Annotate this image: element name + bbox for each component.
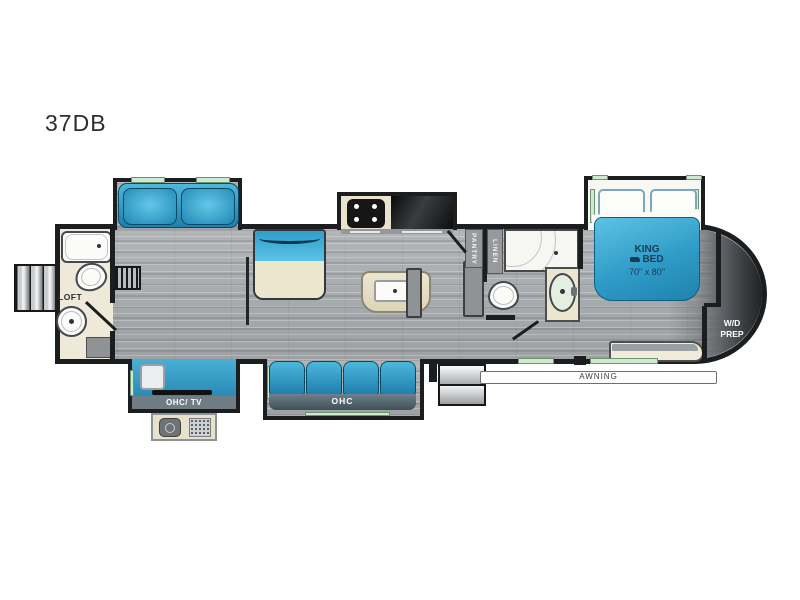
model-number-label: 37DB <box>45 110 107 137</box>
island-faucet <box>393 289 397 293</box>
bathtub-drain <box>97 244 101 248</box>
wd-label-line2: PREP <box>710 329 754 340</box>
window <box>592 175 608 180</box>
sofa-cushion <box>306 361 342 395</box>
loft-label: LOFT <box>58 292 82 302</box>
shower-drain <box>554 251 558 255</box>
linen-label: LINEN <box>487 229 503 274</box>
wd-closet-wall <box>716 229 721 305</box>
bathtub-rim <box>65 234 108 260</box>
dresser-top <box>612 344 698 351</box>
loveseat-cushion-left <box>123 188 177 225</box>
range-stove <box>347 199 385 228</box>
entry-door-jamb <box>429 359 437 382</box>
loft-ladder <box>114 266 141 290</box>
hall-cabinet <box>406 268 422 318</box>
window <box>196 177 230 183</box>
vanity-drain <box>560 289 565 294</box>
main-entry-steps <box>438 364 486 406</box>
mid-bath-wall-bottom <box>486 315 515 320</box>
refrigerator <box>391 196 453 230</box>
burner <box>372 204 377 209</box>
window <box>130 370 134 396</box>
window <box>305 412 390 416</box>
awning-bracket <box>574 356 586 365</box>
king-bed-label-line2: BED <box>594 255 700 265</box>
ohc-tv-label: OHC/ TV <box>132 396 236 409</box>
mid-bath-wall <box>483 229 487 282</box>
rear-sink-drain <box>69 319 74 324</box>
tv-screen <box>152 390 212 395</box>
burner <box>354 217 359 222</box>
pantry-cabinet <box>463 261 484 317</box>
sofa-label: OHC <box>269 394 416 410</box>
loveseat-cushion-right <box>181 188 235 225</box>
den-bed-pillow-line <box>259 233 320 244</box>
rear-bath-wall-lower <box>110 331 115 359</box>
window <box>131 177 165 183</box>
cabinet-handle <box>350 231 380 233</box>
floorplan-canvas: 37DB KING BED 70" x 80" OHC/ TV <box>0 0 800 600</box>
pantry-label: PANTRY <box>465 229 483 268</box>
rear-entry-steps <box>14 264 58 312</box>
den-divider-wall <box>246 257 249 325</box>
shower-door-arc <box>504 229 556 272</box>
rear-bath-wall <box>110 229 115 303</box>
bedroom-wall <box>578 227 583 269</box>
awning-bar: AWNING <box>480 371 717 384</box>
grill-burner <box>165 423 175 433</box>
window <box>590 358 658 364</box>
vanity-faucet <box>571 287 577 296</box>
wd-closet-wall-lower <box>702 306 707 360</box>
sofa-cushion <box>380 361 416 395</box>
shower <box>504 229 579 272</box>
window <box>686 175 702 180</box>
burner <box>372 217 377 222</box>
king-bed-label: KING BED 70" x 80" <box>594 245 700 277</box>
king-bed-size: 70" x 80" <box>594 265 700 277</box>
den-bed <box>253 229 326 300</box>
sofa-cushion <box>269 361 305 395</box>
burner <box>354 204 359 209</box>
step-lower <box>440 386 484 404</box>
sofa-cushion <box>343 361 379 395</box>
griddle-icon <box>189 418 211 437</box>
window <box>518 358 554 364</box>
mid-toilet-seat <box>493 286 514 305</box>
wd-label-line1: W/D <box>710 318 754 329</box>
bath-storage <box>86 337 112 358</box>
den-bed-blanket <box>255 261 324 298</box>
wd-prep-label: W/D PREP <box>710 318 754 340</box>
cabinet-handle <box>402 231 442 233</box>
step-upper <box>440 366 484 384</box>
bed-icon <box>630 257 640 262</box>
tv-cabinet <box>140 364 165 390</box>
